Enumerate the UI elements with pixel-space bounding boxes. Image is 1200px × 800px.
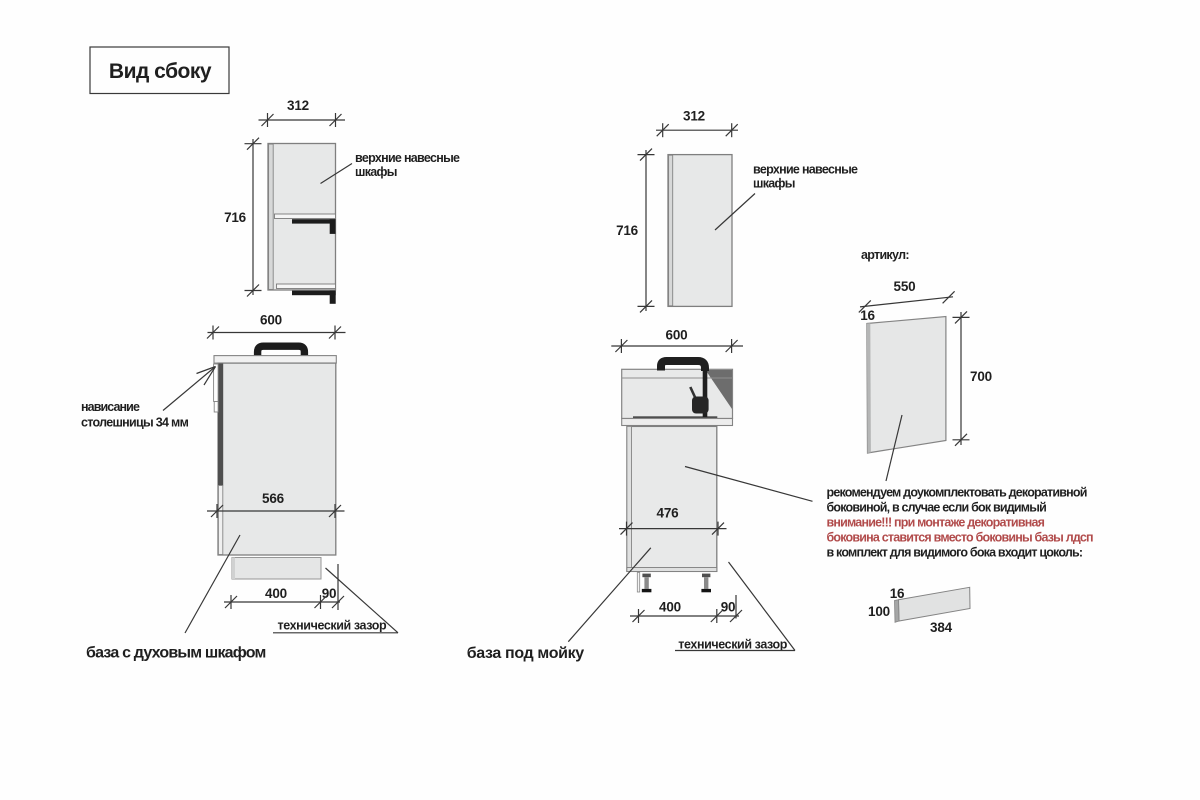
- svg-text:верхние навесные: верхние навесные: [753, 163, 858, 177]
- svg-text:400: 400: [659, 600, 681, 615]
- svg-text:шкафы: шкафы: [355, 165, 397, 179]
- svg-text:384: 384: [930, 620, 953, 635]
- svg-text:в комплект для видимого бока в: в комплект для видимого бока входит цоко…: [827, 546, 1083, 560]
- svg-text:16: 16: [860, 308, 875, 323]
- svg-text:рекомендуем доукомплектовать д: рекомендуем доукомплектовать декоративно…: [827, 486, 1087, 500]
- svg-text:нависание: нависание: [81, 400, 140, 414]
- svg-text:716: 716: [224, 210, 247, 225]
- svg-text:база с духовым шкафом: база с духовым шкафом: [86, 645, 266, 662]
- svg-text:716: 716: [616, 223, 639, 238]
- svg-text:600: 600: [260, 313, 282, 328]
- svg-text:566: 566: [262, 491, 285, 506]
- svg-text:база под мойку: база под мойку: [467, 645, 585, 662]
- svg-text:100: 100: [868, 604, 890, 619]
- svg-text:столешницы 34 мм: столешницы 34 мм: [81, 416, 189, 430]
- svg-text:400: 400: [265, 586, 287, 601]
- svg-text:артикул:: артикул:: [861, 248, 909, 262]
- svg-text:боковиной, в случае если бок в: боковиной, в случае если бок видимый: [827, 501, 1047, 515]
- svg-text:технический зазор: технический зазор: [678, 638, 787, 652]
- svg-text:700: 700: [970, 369, 992, 384]
- svg-text:600: 600: [666, 328, 688, 343]
- svg-text:шкафы: шкафы: [753, 177, 795, 191]
- svg-text:550: 550: [894, 279, 916, 294]
- svg-text:90: 90: [721, 600, 736, 615]
- svg-text:312: 312: [683, 109, 705, 124]
- svg-text:внимание!!! при монтаже декора: внимание!!! при монтаже декоративная: [827, 516, 1045, 530]
- svg-text:Вид сбоку: Вид сбоку: [109, 60, 212, 83]
- svg-text:312: 312: [287, 98, 309, 113]
- svg-text:476: 476: [657, 506, 680, 521]
- svg-text:верхние навесные: верхние навесные: [355, 151, 460, 165]
- svg-text:технический зазор: технический зазор: [278, 619, 387, 633]
- svg-text:боковина ставится вместо боков: боковина ставится вместо боковины базы л…: [827, 531, 1093, 545]
